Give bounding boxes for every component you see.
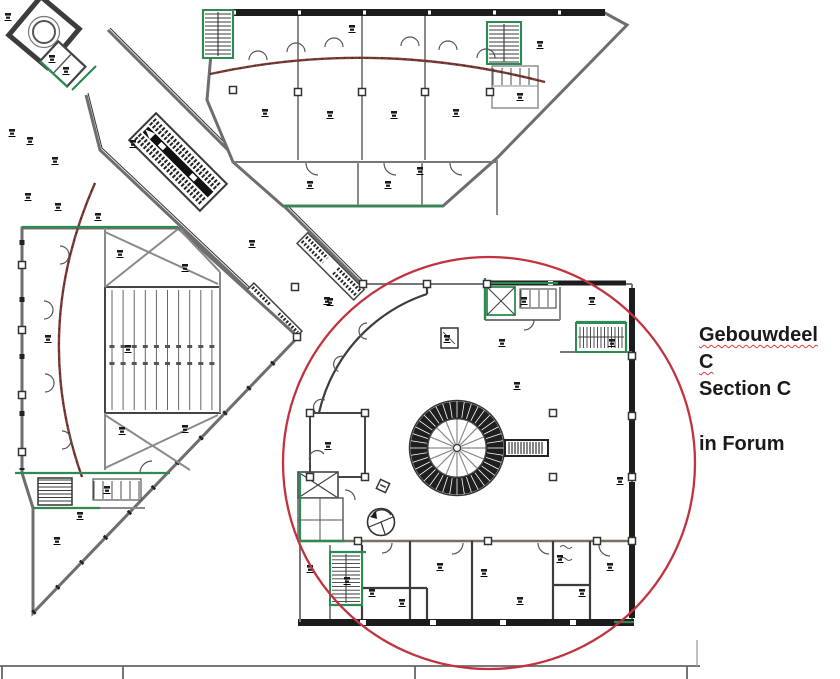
label-in-forum: in Forum bbox=[699, 431, 837, 458]
left-wing bbox=[22, 183, 298, 613]
bridge bbox=[505, 440, 548, 456]
annotation-text: Gebouwdeel C Section C in Forum bbox=[699, 322, 837, 458]
spiral-stair-icon bbox=[368, 509, 395, 536]
top-wing bbox=[203, 9, 627, 215]
section-c bbox=[298, 281, 635, 627]
column-icon bbox=[376, 479, 389, 492]
scale-bar bbox=[0, 640, 700, 679]
rotunda bbox=[410, 401, 505, 496]
floorplan-canvas: Gebouwdeel C Section C in Forum bbox=[0, 0, 840, 679]
label-section-c: Section C bbox=[699, 378, 791, 400]
stair-tower bbox=[9, 0, 86, 86]
label-gebouwdeel-c: Gebouwdeel C bbox=[699, 324, 818, 373]
corridor-stair bbox=[297, 233, 364, 300]
